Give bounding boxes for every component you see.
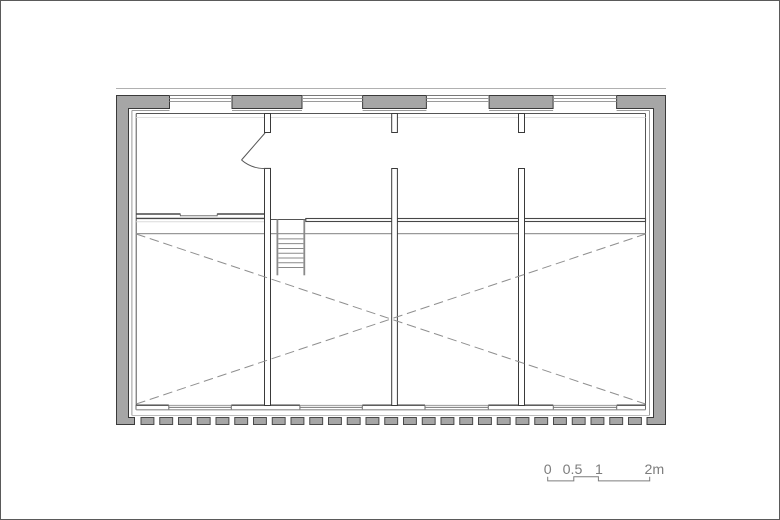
svg-text:0: 0 <box>544 462 552 478</box>
svg-text:1: 1 <box>595 462 603 478</box>
svg-text:0.5: 0.5 <box>563 462 583 478</box>
svg-text:2m: 2m <box>644 462 664 478</box>
